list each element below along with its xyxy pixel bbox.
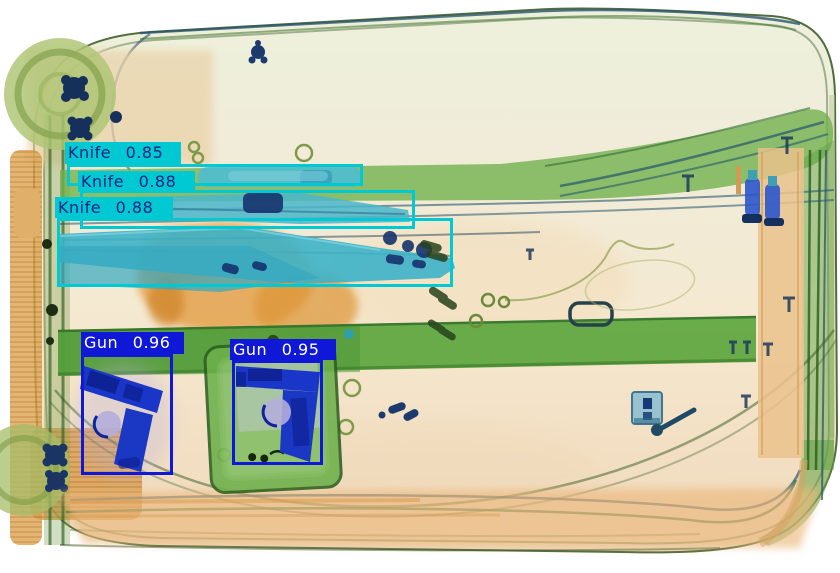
detection-box-gun-1: Gun 0.96 — [81, 354, 173, 475]
detection-label: Knife 0.88 — [55, 197, 173, 218]
detection-label: Knife 0.85 — [65, 142, 181, 164]
detection-label: Gun 0.96 — [81, 332, 184, 354]
detection-label: Knife 0.88 — [78, 171, 195, 192]
detection-box-gun-2: Gun 0.95 — [232, 360, 323, 465]
xray-scan-viewport: Knife 0.85 Knife 0.88 Knife 0.88 Gun 0.9… — [0, 0, 840, 573]
detection-box-knife-3: Knife 0.88 — [57, 218, 453, 287]
detection-label: Gun 0.95 — [230, 339, 336, 360]
